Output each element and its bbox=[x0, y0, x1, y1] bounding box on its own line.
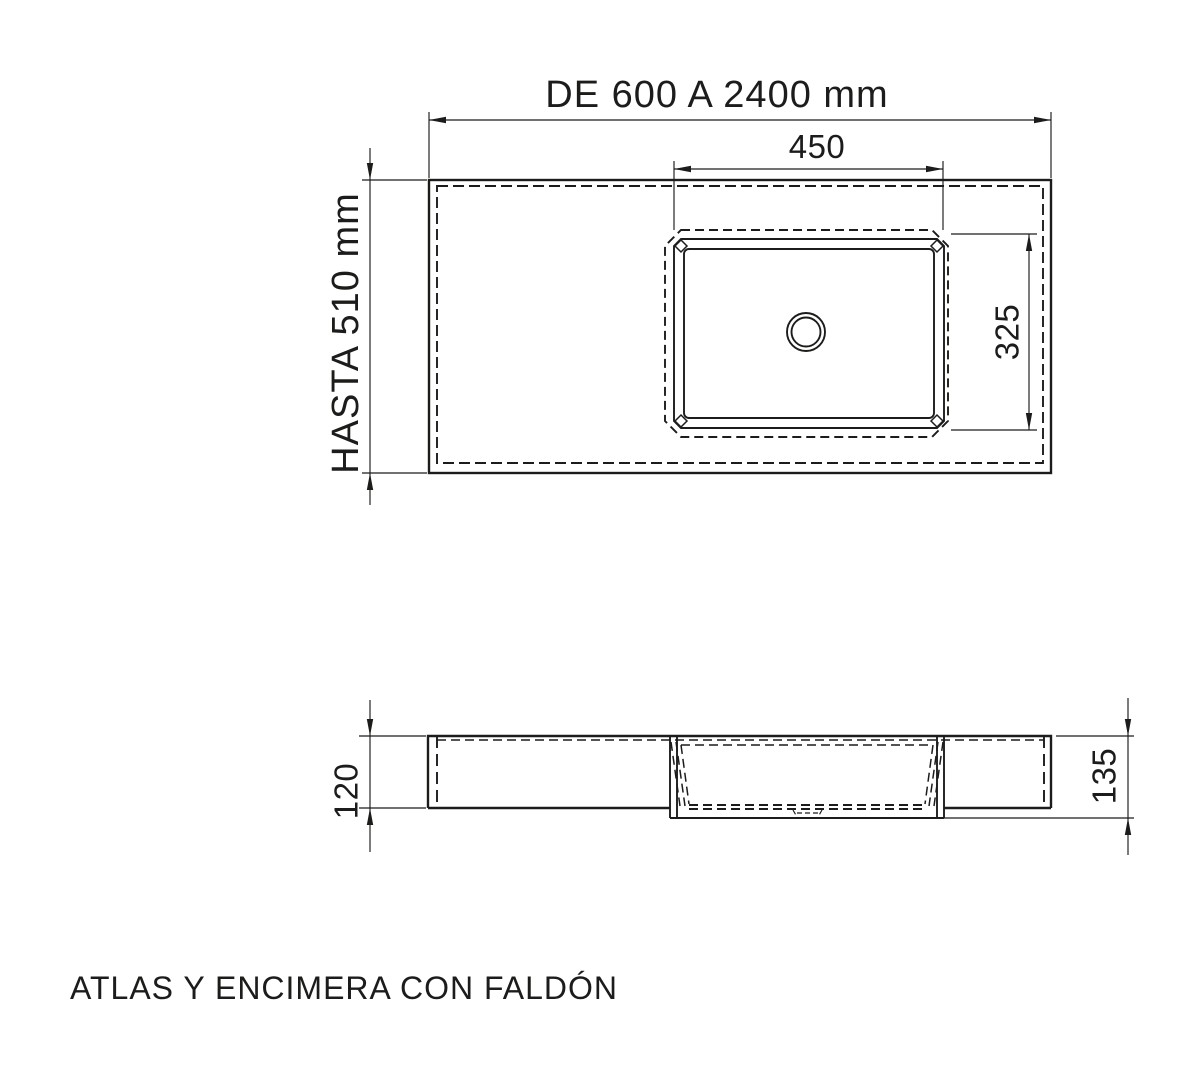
countertop-edge-hidden-line bbox=[437, 186, 1043, 463]
dim-basin-depth: 325 bbox=[951, 234, 1037, 430]
top-view bbox=[429, 180, 1051, 473]
arrowhead bbox=[1034, 117, 1051, 123]
basin-depth-label: 325 bbox=[989, 304, 1026, 361]
technical-drawing: DE 600 A 2400 mm 450 HASTA 510 mm 325 bbox=[0, 0, 1200, 1070]
basin-slope-hidden-line bbox=[925, 745, 933, 804]
arrowhead bbox=[926, 166, 943, 172]
right-thickness-label: 135 bbox=[1086, 748, 1123, 805]
drain-hidden-line bbox=[818, 810, 822, 817]
dim-overall-depth: HASTA 510 mm bbox=[325, 148, 427, 505]
arrowhead bbox=[367, 163, 373, 180]
arrowhead bbox=[367, 473, 373, 490]
overall-depth-label: HASTA 510 mm bbox=[325, 192, 367, 474]
basin-rim-inner bbox=[684, 249, 934, 418]
arrowhead bbox=[429, 117, 446, 123]
arrowhead bbox=[1026, 234, 1032, 251]
dim-overall-width: DE 600 A 2400 mm bbox=[429, 74, 1051, 178]
arrowhead bbox=[367, 719, 373, 736]
basin-rim-outer bbox=[674, 239, 944, 428]
left-thickness-label: 120 bbox=[328, 763, 365, 820]
drain-inner-circle bbox=[792, 318, 821, 347]
drawing-caption: ATLAS Y ENCIMERA CON FALDÓN bbox=[70, 970, 618, 1006]
arrowhead bbox=[367, 808, 373, 825]
side-view bbox=[428, 736, 1051, 818]
basin-slope-hidden-line bbox=[681, 745, 689, 804]
dim-right-thickness: 135 bbox=[944, 698, 1134, 855]
overall-width-label: DE 600 A 2400 mm bbox=[545, 74, 888, 116]
arrowhead bbox=[1125, 719, 1131, 736]
basin-slope-hidden-line bbox=[671, 742, 680, 806]
drain-outer-circle bbox=[787, 313, 825, 351]
drain-hidden-line bbox=[793, 810, 797, 817]
countertop-outline bbox=[429, 180, 1051, 473]
arrowhead bbox=[1026, 413, 1032, 430]
dim-left-thickness: 120 bbox=[328, 700, 427, 852]
slab-outline bbox=[428, 736, 1051, 808]
basin-cutout-hidden-line bbox=[665, 230, 948, 437]
basin-slope-hidden-line bbox=[934, 742, 943, 806]
basin-width-label: 450 bbox=[789, 128, 846, 165]
arrowhead bbox=[674, 166, 691, 172]
arrowhead bbox=[1125, 818, 1131, 835]
